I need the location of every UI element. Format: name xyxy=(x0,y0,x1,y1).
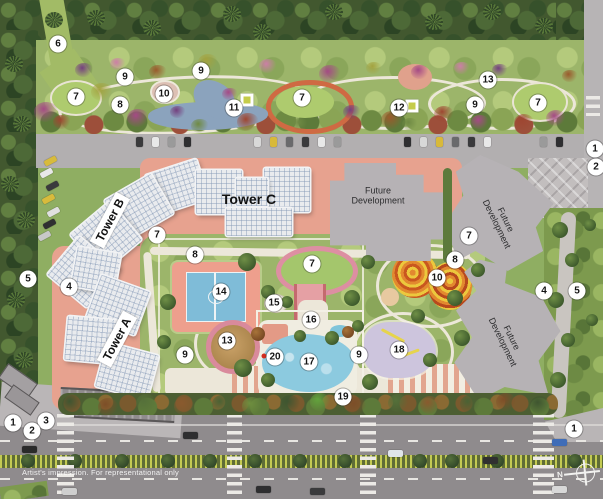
north-compass-icon: N xyxy=(558,454,603,492)
tree xyxy=(471,263,485,277)
parked-car xyxy=(302,137,309,147)
parked-car xyxy=(334,137,341,147)
flower-bed xyxy=(149,65,167,79)
palm-tree xyxy=(425,14,443,30)
median-tree xyxy=(248,454,262,468)
tree xyxy=(261,373,275,387)
car xyxy=(22,446,37,453)
marker-10: 10 xyxy=(156,86,173,103)
palm-tree xyxy=(87,10,105,26)
square-feature-icon xyxy=(241,94,254,107)
tree xyxy=(552,222,568,238)
marker-7: 7 xyxy=(68,89,85,106)
crosswalk xyxy=(57,414,74,498)
parked-car xyxy=(41,193,55,204)
parked-car xyxy=(46,206,60,217)
tree xyxy=(561,333,575,347)
marker-16: 16 xyxy=(303,312,320,329)
parked-car xyxy=(168,137,175,147)
marker-4: 4 xyxy=(61,279,78,296)
tree xyxy=(423,353,437,367)
parked-car xyxy=(556,137,563,147)
marker-11: 11 xyxy=(226,100,243,117)
flower-bed xyxy=(191,119,209,133)
flower-bed xyxy=(514,114,534,130)
tree xyxy=(362,374,378,390)
marker-5: 5 xyxy=(569,283,586,300)
parked-car xyxy=(468,137,475,147)
tree xyxy=(344,290,360,306)
marker-2: 2 xyxy=(24,423,41,440)
compass-north-label: N xyxy=(557,470,564,480)
marker-20: 20 xyxy=(267,349,284,366)
flower-bed xyxy=(53,115,71,129)
parked-car xyxy=(37,230,51,241)
median-tree xyxy=(203,454,217,468)
palm-tree xyxy=(45,12,63,28)
car xyxy=(310,488,325,495)
parked-car xyxy=(45,180,59,191)
tree xyxy=(565,253,579,267)
marker-3: 3 xyxy=(38,413,55,430)
marker-14: 14 xyxy=(213,284,230,301)
marker-7: 7 xyxy=(294,90,311,107)
palm-tree xyxy=(13,116,31,132)
street-tree xyxy=(388,394,408,412)
street-tree xyxy=(496,393,516,411)
flower-bed xyxy=(127,109,149,127)
palm-tree xyxy=(483,4,501,20)
marker-1: 1 xyxy=(566,421,583,438)
palm-tree xyxy=(7,292,25,308)
marker-7: 7 xyxy=(304,256,321,273)
tree xyxy=(325,331,339,345)
flower-bed xyxy=(471,115,489,129)
palm-tree xyxy=(535,18,553,34)
marker-15: 15 xyxy=(266,295,283,312)
median-tree xyxy=(161,454,175,468)
palm-tree xyxy=(1,176,19,192)
autumn-tree xyxy=(342,326,354,338)
palm-tree xyxy=(223,6,241,22)
parked-car xyxy=(420,137,427,147)
tree xyxy=(157,335,171,349)
marker-17: 17 xyxy=(301,354,318,371)
median-tree xyxy=(338,454,352,468)
flower-bed xyxy=(434,106,454,122)
marker-2: 2 xyxy=(588,159,603,176)
lane-line xyxy=(0,440,603,442)
marker-8: 8 xyxy=(447,252,464,269)
parked-car xyxy=(286,137,293,147)
car xyxy=(388,450,403,457)
marker-12: 12 xyxy=(391,100,408,117)
tree xyxy=(160,294,176,310)
palm-tree xyxy=(325,4,343,20)
parked-car xyxy=(184,137,191,147)
marker-1: 1 xyxy=(587,141,603,158)
street-hedge-row xyxy=(58,393,558,415)
marker-7: 7 xyxy=(149,227,166,244)
crosswalk xyxy=(227,414,242,498)
autumn-tree xyxy=(251,327,265,341)
marker-8: 8 xyxy=(112,97,129,114)
median-tree xyxy=(413,454,427,468)
flower-bed xyxy=(259,59,277,73)
marker-4: 4 xyxy=(536,283,553,300)
parked-car xyxy=(39,167,53,178)
flower-bed xyxy=(343,105,361,119)
marker-7: 7 xyxy=(530,95,547,112)
street-tree xyxy=(62,395,82,413)
road-edge-line xyxy=(60,424,603,426)
parked-car xyxy=(404,137,411,147)
tree xyxy=(294,330,306,342)
marker-9: 9 xyxy=(467,97,484,114)
street-tree xyxy=(242,397,262,415)
street-tree xyxy=(212,395,232,413)
marker-1: 1 xyxy=(5,415,22,432)
east-crosswalk xyxy=(586,96,600,116)
marker-6: 6 xyxy=(50,36,67,53)
marker-7: 7 xyxy=(461,228,478,245)
parked-car xyxy=(42,218,56,229)
street-tree xyxy=(460,395,480,413)
marker-9: 9 xyxy=(177,347,194,364)
tree xyxy=(411,309,425,323)
street-tree xyxy=(310,393,330,411)
palm-tree xyxy=(17,212,35,228)
tree xyxy=(447,290,463,306)
palm-tree xyxy=(253,24,271,40)
parked-car xyxy=(436,137,443,147)
crosswalk xyxy=(360,414,376,498)
flower-bed xyxy=(91,83,113,101)
crosswalk xyxy=(533,414,554,498)
flower-bed xyxy=(546,110,566,126)
disclaimer-text: Artist's impression. For representationa… xyxy=(22,468,179,477)
tree xyxy=(234,359,252,377)
marker-9: 9 xyxy=(193,63,210,80)
tree xyxy=(238,253,256,271)
marker-13: 13 xyxy=(480,72,497,89)
palm-tree xyxy=(5,56,23,72)
flower-bed xyxy=(319,65,341,83)
street-tree xyxy=(136,394,156,412)
parked-car xyxy=(452,137,459,147)
marker-19: 19 xyxy=(335,389,352,406)
median-tree xyxy=(445,454,459,468)
tree xyxy=(586,314,598,326)
car xyxy=(552,439,567,446)
parked-car xyxy=(152,137,159,147)
marker-13: 13 xyxy=(219,333,236,350)
tree xyxy=(454,330,470,346)
marker-10: 10 xyxy=(429,270,446,287)
play-sand-circle xyxy=(381,288,399,306)
car xyxy=(483,457,498,464)
car xyxy=(62,488,77,495)
car xyxy=(183,432,198,439)
car xyxy=(256,486,271,493)
median-tree xyxy=(293,454,307,468)
street-tree xyxy=(174,397,194,415)
marker-9: 9 xyxy=(117,69,134,86)
parked-car xyxy=(318,137,325,147)
flower-bed xyxy=(75,63,93,77)
palm-tree xyxy=(143,20,161,36)
street-tree xyxy=(420,396,440,414)
street-tree xyxy=(530,396,550,414)
tree xyxy=(584,219,596,231)
flower-bed xyxy=(237,113,259,131)
lane-line xyxy=(0,478,603,480)
tree xyxy=(281,296,293,308)
tower-c-building xyxy=(226,208,292,236)
street-tree xyxy=(280,395,300,413)
marker-5: 5 xyxy=(20,271,37,288)
marker-9: 9 xyxy=(351,347,368,364)
street-tree xyxy=(98,398,118,416)
tower-c-label: Tower C xyxy=(222,191,276,207)
median-tree xyxy=(115,454,129,468)
flower-bed xyxy=(411,65,429,79)
hedge-between-buildings xyxy=(443,168,452,263)
marker-18: 18 xyxy=(391,342,408,359)
tree xyxy=(361,255,375,269)
future-development-center-label: Future Development xyxy=(348,186,408,207)
parked-car xyxy=(270,137,277,147)
masterplan-image: Artist's impression. For representationa… xyxy=(0,0,603,499)
palm-tree xyxy=(15,352,33,368)
tree xyxy=(550,372,566,388)
parked-car xyxy=(136,137,143,147)
parked-car xyxy=(484,137,491,147)
parked-car xyxy=(254,137,261,147)
median-tree xyxy=(21,454,35,468)
marker-8: 8 xyxy=(187,247,204,264)
parked-car xyxy=(540,137,547,147)
